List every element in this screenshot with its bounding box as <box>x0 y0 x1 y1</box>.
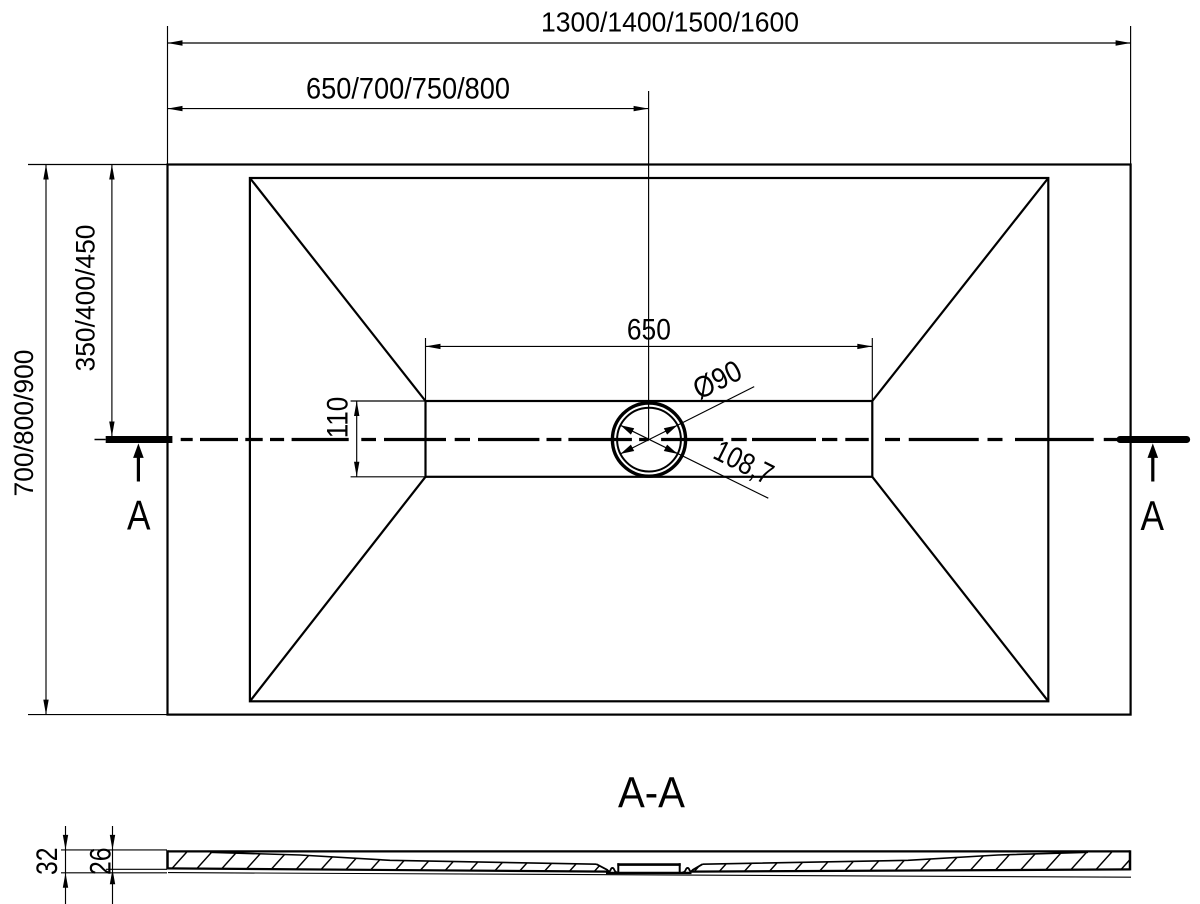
svg-text:350/400/450: 350/400/450 <box>71 225 101 372</box>
svg-text:A: A <box>127 492 151 539</box>
svg-text:A-A: A-A <box>618 769 686 818</box>
svg-text:700/800/900: 700/800/900 <box>9 350 39 497</box>
svg-text:A: A <box>1141 492 1165 539</box>
svg-text:650: 650 <box>627 313 671 346</box>
svg-text:26: 26 <box>85 848 118 876</box>
svg-text:1300/1400/1500/1600: 1300/1400/1500/1600 <box>541 7 799 38</box>
svg-text:32: 32 <box>31 848 64 876</box>
svg-text:110: 110 <box>322 397 355 439</box>
svg-text:Ø90: Ø90 <box>688 354 747 406</box>
svg-text:108,7: 108,7 <box>708 434 778 491</box>
svg-text:650/700/750/800: 650/700/750/800 <box>306 73 510 106</box>
